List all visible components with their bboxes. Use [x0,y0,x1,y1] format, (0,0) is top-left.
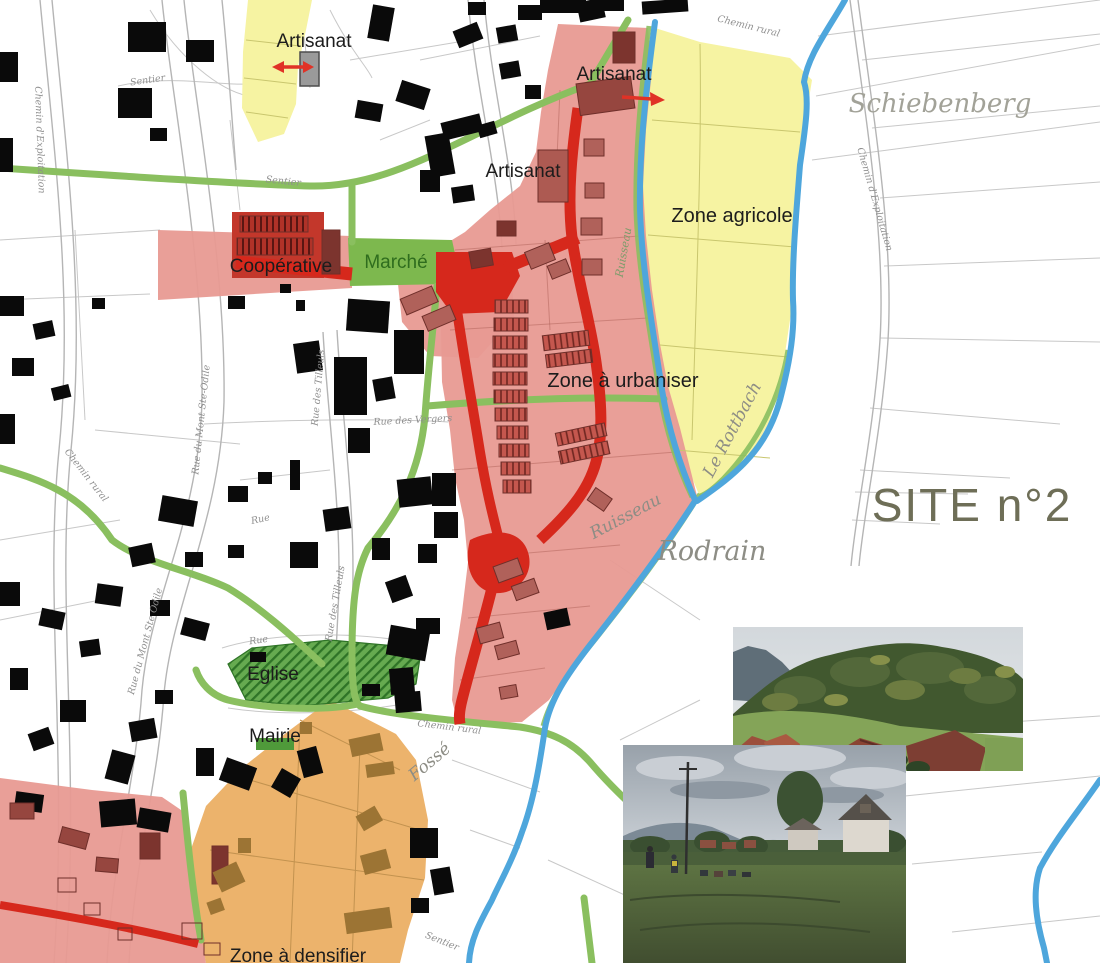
zone-label-artisanat-n: Artisanat [577,64,653,85]
zone-label-eglise: Eglise [247,664,299,685]
zone-label-artisanat-nw: Artisanat [277,31,353,52]
zone-label-marche: Marché [364,252,427,273]
photo-meadow-group [623,745,910,963]
site-number-label: SITE n°2 [872,479,1073,531]
zone-label-zone-a-urbaniser: Zone à urbaniser [547,370,699,392]
zone-label-zone-a-densifier: Zone à densifier [230,946,367,963]
place-label-schiebenberg: Schiebenberg [849,89,1032,119]
zone-label-mairie: Mairie [249,726,301,747]
zone-label-artisanat-c: Artisanat [486,161,562,182]
map-canvas: Chemin rural Chemin d'Exploitation Chemi… [0,0,1100,963]
place-label-rodrain: Rodrain [657,536,767,567]
zone-label-cooperative: Coopérative [230,256,332,277]
zone-label-zone-agricole: Zone agricole [671,205,792,227]
urban-plan-map: Chemin rural Chemin d'Exploitation Chemi… [0,0,1100,963]
